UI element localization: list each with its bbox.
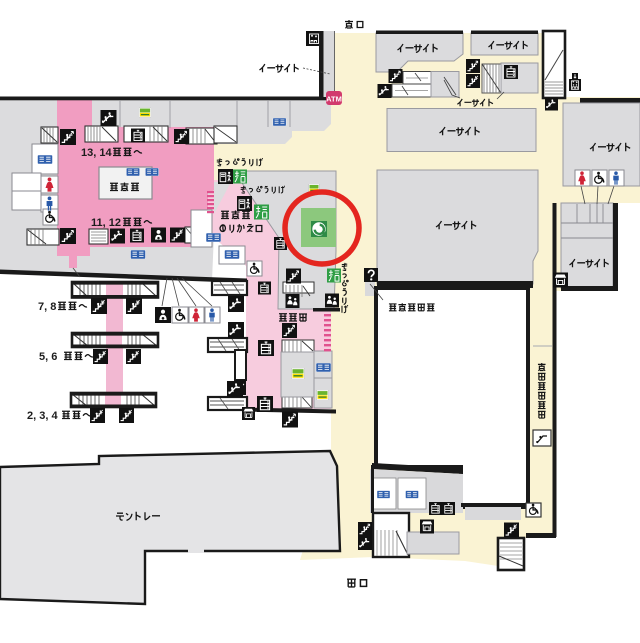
svg-text:5, 6: 5, 6	[39, 351, 57, 363]
svg-text:ATM: ATM	[326, 95, 342, 104]
svg-text:7, 8: 7, 8	[38, 301, 56, 313]
svg-text:13, 14: 13, 14	[81, 147, 112, 159]
svg-text:11, 12: 11, 12	[91, 217, 121, 229]
svg-text:2, 3, 4: 2, 3, 4	[27, 410, 58, 422]
